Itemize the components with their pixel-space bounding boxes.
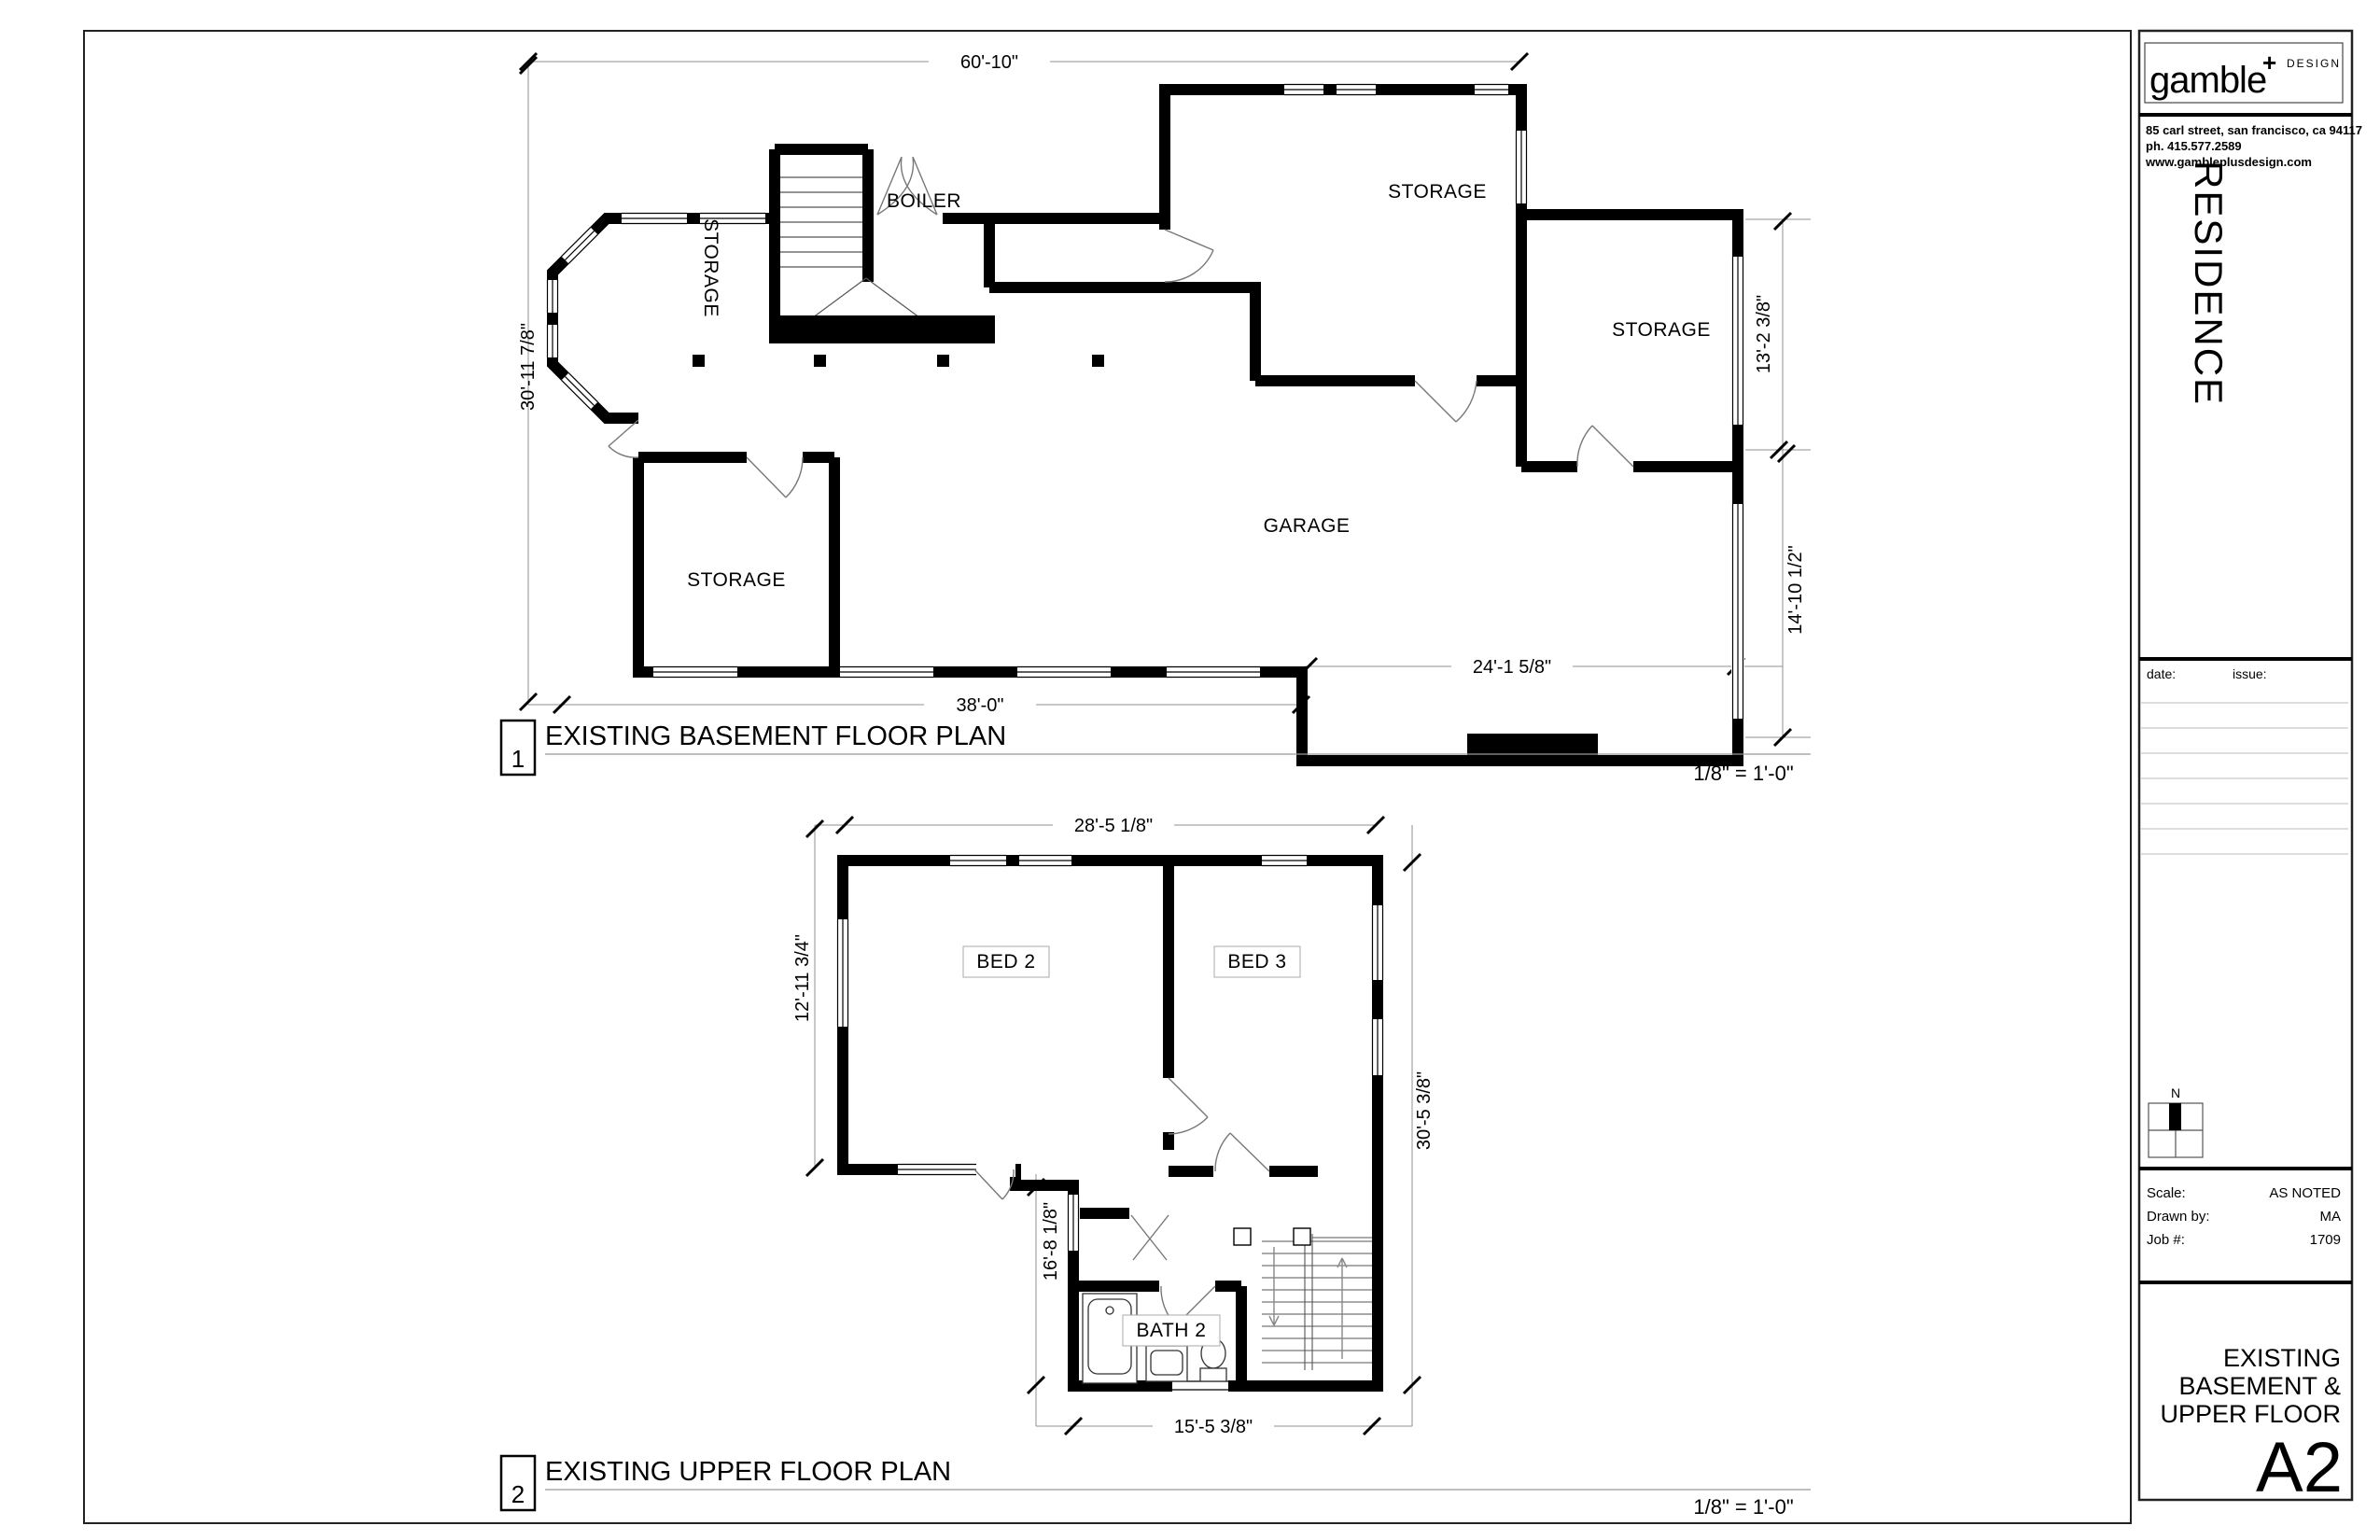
plan1-title-text: EXISTING BASEMENT FLOOR PLAN (545, 721, 1006, 751)
plan2-dim-left-lower: 16'-8 1/8" (1041, 1202, 1061, 1281)
logo-plus-icon: + (2262, 49, 2276, 77)
plan2-stairs (1234, 1228, 1372, 1370)
drawn-by-value: MA (2320, 1209, 2342, 1225)
plan1-columns (693, 355, 1104, 367)
room-label-storage-lower: STORAGE (687, 569, 786, 591)
room-label-storage-right: STORAGE (1612, 319, 1711, 341)
plan1-dim-bottom: 38'-0" (957, 695, 1004, 716)
plan1-dim-right-lower: 14'-10 1/2" (1785, 545, 1806, 634)
scale-value: AS NOTED (2269, 1185, 2341, 1201)
logo-suffix: DESIGN (2287, 57, 2341, 70)
sheet-borders (84, 31, 2352, 1523)
sheet-title-line1: EXISTING (2223, 1344, 2341, 1372)
date-label: date: (2147, 666, 2176, 681)
drawn-by-label: Drawn by: (2147, 1209, 2210, 1225)
room-label-bed3: BED 3 (1227, 951, 1286, 973)
scale-label: Scale: (2147, 1185, 2186, 1201)
plan1-doors (609, 157, 1633, 497)
room-label-boiler: BOILER (887, 190, 961, 212)
room-label-bed2: BED 2 (976, 951, 1035, 973)
sheet-title-line2: BASEMENT & (2178, 1372, 2341, 1400)
job-label: Job #: (2147, 1232, 2185, 1248)
plan1-dim-right-upper: 13'-2 3/8" (1754, 295, 1774, 373)
issue-label: issue: (2233, 666, 2267, 681)
plan2-scale: 1/8" = 1'-0" (1693, 1495, 1793, 1519)
sheet-canvas: 60'-10" 30'-11 7/8" 13'-2 3/8" 14'-10 1/… (0, 0, 2380, 1540)
basement-floor-plan: 60'-10" 30'-11 7/8" 13'-2 3/8" 14'-10 1/… (501, 50, 1811, 785)
garage-door (1467, 734, 1598, 762)
plan1-dim-bottom-inner: 24'-1 5/8" (1473, 657, 1551, 678)
plan1-title: 1 EXISTING BASEMENT FLOOR PLAN 1/8" = 1'… (501, 721, 1811, 785)
room-label-bath2: BATH 2 (1137, 1320, 1207, 1341)
drawing-sheet: 60'-10" 30'-11 7/8" 13'-2 3/8" 14'-10 1/… (0, 0, 2380, 1540)
logo-text: gamble (2149, 60, 2266, 101)
plan2-title-text: EXISTING UPPER FLOOR PLAN (545, 1457, 951, 1487)
plan1-dimension-ticks (520, 53, 1795, 746)
plan1-scale: 1/8" = 1'-0" (1693, 762, 1793, 785)
plan2-windows (836, 854, 1384, 1251)
project-name: RESIDENCE (2187, 161, 2231, 406)
job-value: 1709 (2310, 1232, 2341, 1248)
sheet-title-line3: UPPER FLOOR (2160, 1400, 2341, 1428)
stair-direction-arrows (1269, 1247, 1347, 1359)
plan2-title: 2 EXISTING UPPER FLOOR PLAN 1/8" = 1'-0" (501, 1456, 1811, 1519)
room-label-storage-bay: STORAGE (700, 218, 721, 317)
room-label-storage-main: STORAGE (1388, 181, 1487, 203)
plan1-number: 1 (511, 745, 525, 773)
plan1-dim-top: 60'-10" (960, 52, 1018, 73)
plan1-dim-left: 30'-11 7/8" (518, 323, 539, 411)
address-line1: 85 carl street, san francisco, ca 94117 (2146, 123, 2362, 137)
plan1-windows (546, 83, 1744, 719)
room-label-garage: GARAGE (1264, 515, 1351, 537)
plan2-dim-right: 30'-5 3/8" (1414, 1071, 1435, 1150)
plan1-room-labels: STORAGE BOILER STORAGE STORAGE STORAGE G… (687, 181, 1711, 591)
sheet-number: A2 (2256, 1428, 2343, 1507)
plan2-dim-bottom: 15'-5 3/8" (1174, 1417, 1253, 1437)
plan2-number: 2 (511, 1480, 525, 1508)
plan2-dim-top: 28'-5 1/8" (1074, 816, 1153, 836)
address-line2: ph. 415.577.2589 (2146, 139, 2242, 153)
north-label: N (2171, 1085, 2180, 1100)
plan2-dim-left-upper: 12'-11 3/4" (792, 934, 813, 1022)
upper-floor-plan: 28'-5 1/8" 12'-11 3/4" 16'-8 1/8" 30'-5 … (501, 814, 1811, 1519)
